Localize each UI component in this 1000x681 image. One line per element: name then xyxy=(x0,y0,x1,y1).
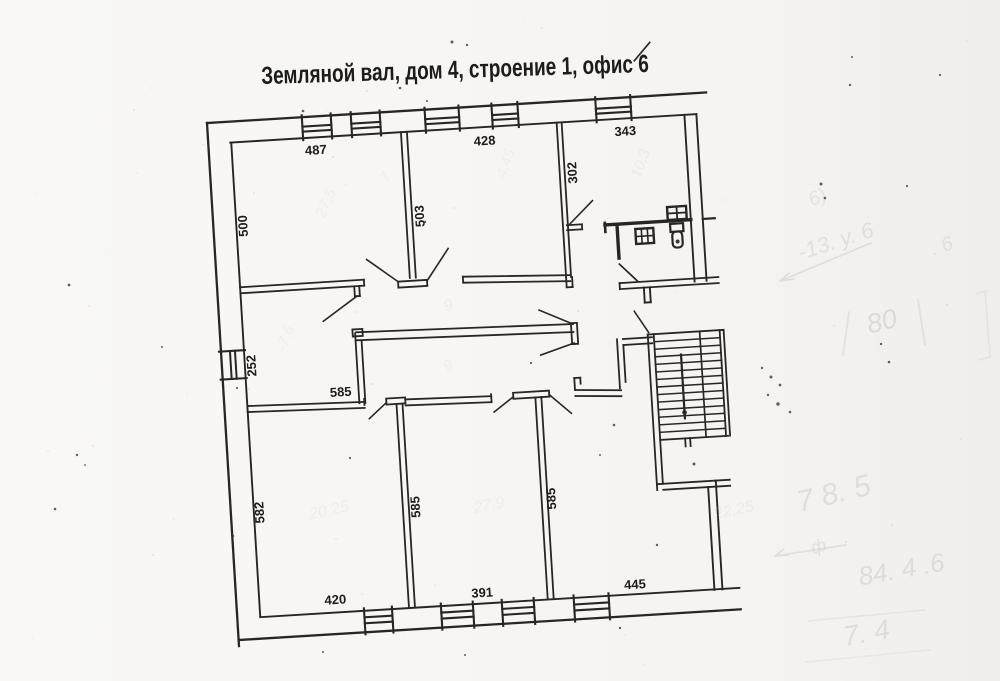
svg-text:582: 582 xyxy=(251,501,267,524)
svg-text:391: 391 xyxy=(471,584,494,600)
svg-text:585: 585 xyxy=(543,487,559,510)
svg-text:420: 420 xyxy=(324,591,347,607)
svg-text:445: 445 xyxy=(624,576,647,592)
svg-text:252: 252 xyxy=(243,354,259,377)
svg-text:503: 503 xyxy=(411,205,427,228)
svg-text:585: 585 xyxy=(407,496,423,519)
svg-text:302: 302 xyxy=(564,162,580,185)
svg-text:343: 343 xyxy=(614,123,637,139)
svg-text:500: 500 xyxy=(235,215,251,238)
svg-text:585: 585 xyxy=(329,384,352,400)
svg-text:428: 428 xyxy=(473,132,496,148)
svg-text:487: 487 xyxy=(305,142,328,158)
